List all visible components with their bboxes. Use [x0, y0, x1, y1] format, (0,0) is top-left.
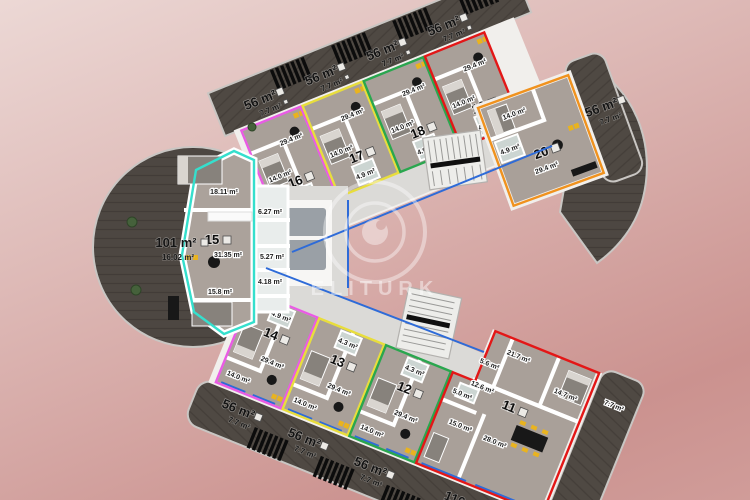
plant-icon [248, 123, 256, 131]
pillow-icon [178, 156, 188, 184]
annex-rooms [254, 186, 288, 312]
door-icon [344, 74, 349, 79]
wardrobe-icon [168, 296, 179, 320]
stairwell-top [423, 130, 488, 190]
door-icon [467, 25, 472, 30]
unit-area-label: 101 m² [155, 235, 197, 250]
room-area-label: 6.27 m² [258, 209, 283, 216]
room-area-label: 18.11 m² [210, 189, 238, 196]
watermark-brand: ELITURK [311, 278, 440, 300]
room-area-label: 15.8 m² [208, 289, 233, 296]
room-area-label: 31.35 m² [214, 252, 243, 259]
floor-plan-svg: 29.4 m² 14.0 m² 4.9 m² 16 56 m² 7.7 m² 2… [0, 0, 750, 500]
door-icon [283, 99, 288, 104]
room-area-label: 4.18 m² [258, 279, 283, 286]
door-icon [201, 239, 208, 246]
kitchen-counter-icon [208, 212, 252, 221]
door-icon [406, 50, 411, 55]
terrace-area-label: 16.02 m² [162, 253, 194, 262]
floor-plan-stage: 29.4 m² 14.0 m² 4.9 m² 16 56 m² 7.7 m² 2… [0, 0, 750, 500]
door-icon [223, 236, 231, 244]
plant-icon [131, 285, 141, 295]
plant-icon [127, 217, 137, 227]
room-area-label: 5.27 m² [260, 254, 285, 261]
